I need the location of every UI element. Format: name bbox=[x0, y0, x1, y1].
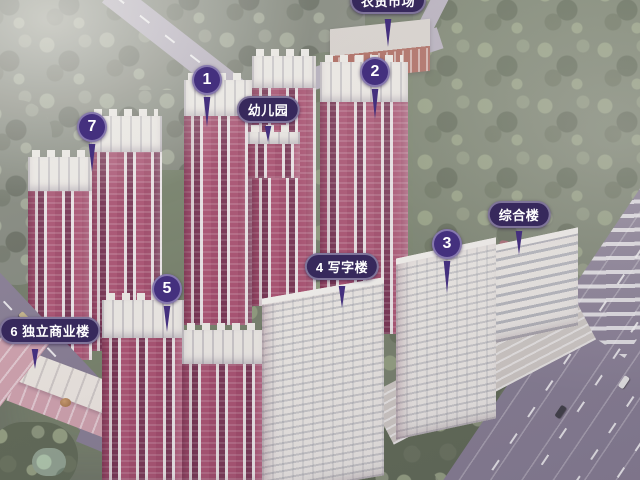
label-farmers-market-pointer-icon bbox=[382, 19, 393, 47]
label-commercial-building-pointer-icon bbox=[30, 349, 41, 369]
marker-5-pointer-icon bbox=[162, 306, 173, 332]
label-office-building-text: 4 写字楼 bbox=[305, 253, 379, 280]
label-kindergarten: 幼儿园 bbox=[237, 96, 300, 142]
label-kindergarten-pointer-icon bbox=[262, 126, 273, 142]
marker-2-text: 2 bbox=[360, 57, 390, 87]
label-complex-building-pointer-icon bbox=[513, 231, 524, 255]
marker-1: 1 bbox=[192, 65, 222, 127]
marker-3-pointer-icon bbox=[442, 261, 453, 293]
marker-2-pointer-icon bbox=[370, 89, 381, 119]
marker-1-pointer-icon bbox=[202, 97, 213, 127]
label-commercial-building: 6 独立商业楼 bbox=[0, 317, 101, 369]
label-kindergarten-text: 幼儿园 bbox=[237, 96, 300, 123]
label-complex-building-text: 综合楼 bbox=[488, 201, 551, 228]
marker-5-text: 5 bbox=[152, 274, 182, 304]
marker-7-pointer-icon bbox=[87, 144, 98, 172]
marker-3-text: 3 bbox=[432, 229, 462, 259]
marker-5: 5 bbox=[152, 274, 182, 332]
label-farmers-market-text: 农贸市场 bbox=[350, 0, 426, 14]
marker-7-text: 7 bbox=[77, 112, 107, 142]
label-complex-building: 综合楼 bbox=[488, 201, 551, 255]
site-plan-photo: 12357幼儿园农贸市场综合楼4 写字楼6 独立商业楼 bbox=[0, 0, 640, 480]
label-farmers-market: 农贸市场 bbox=[350, 0, 426, 47]
marker-2: 2 bbox=[360, 57, 390, 119]
label-office-building-pointer-icon bbox=[337, 286, 348, 308]
marker-7: 7 bbox=[77, 112, 107, 172]
marker-3: 3 bbox=[432, 229, 462, 293]
marker-1-text: 1 bbox=[192, 65, 222, 95]
label-commercial-building-text: 6 独立商业楼 bbox=[0, 317, 101, 344]
label-office-building: 4 写字楼 bbox=[305, 253, 379, 308]
annotation-layer: 12357幼儿园农贸市场综合楼4 写字楼6 独立商业楼 bbox=[0, 0, 640, 480]
